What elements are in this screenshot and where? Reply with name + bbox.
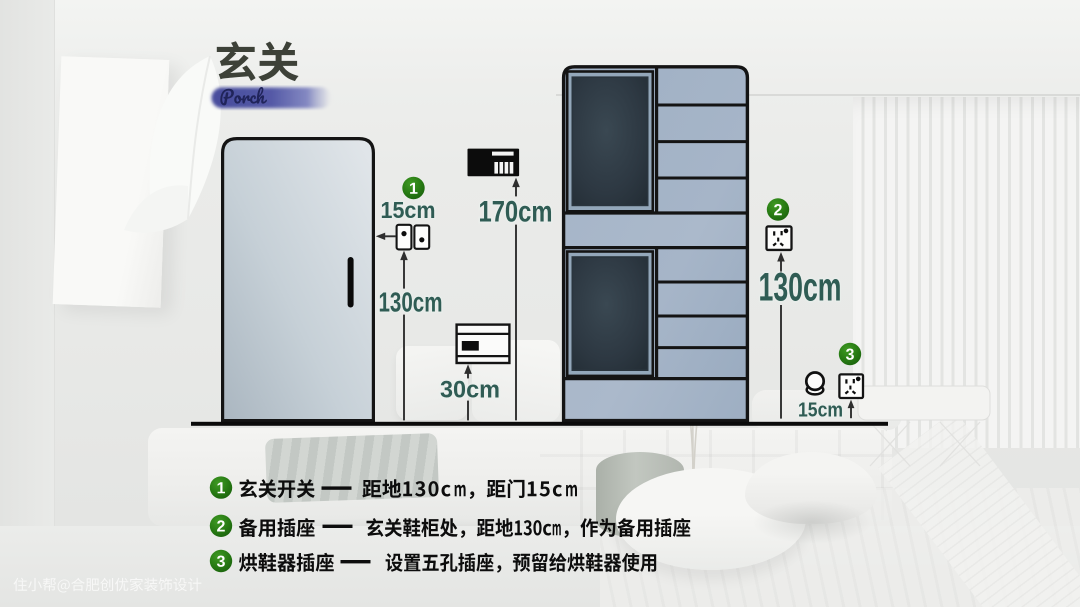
- svg-text:30cm: 30cm: [440, 377, 500, 404]
- svg-text:170cm: 170cm: [479, 196, 553, 229]
- svg-text:15cm: 15cm: [798, 399, 843, 422]
- svg-text:15cm: 15cm: [381, 197, 436, 223]
- svg-text:130cm: 130cm: [759, 266, 842, 310]
- svg-text:130cm: 130cm: [379, 287, 443, 318]
